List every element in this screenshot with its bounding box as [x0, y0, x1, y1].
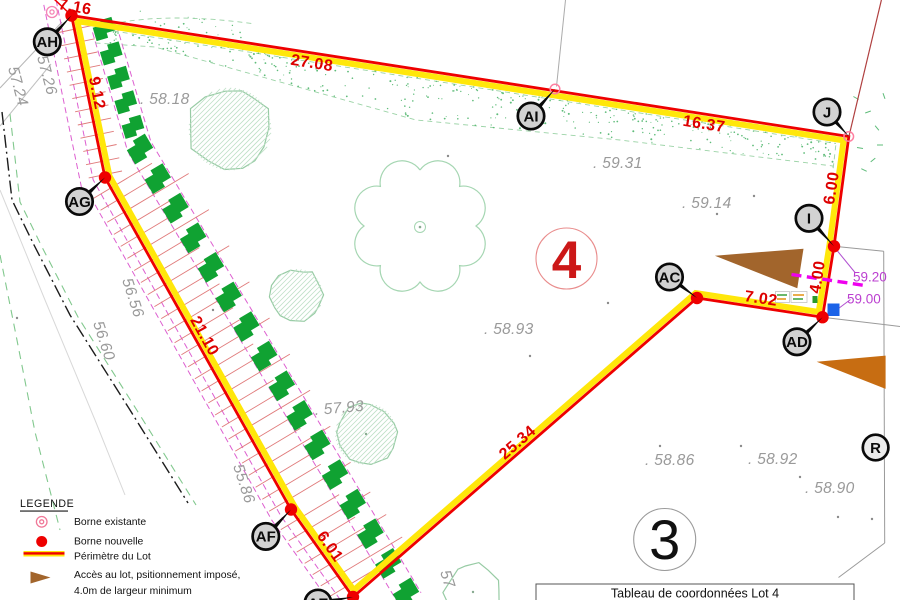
svg-text:. 58.90: . 58.90 — [805, 480, 855, 497]
svg-text:AG: AG — [68, 194, 91, 211]
svg-text:4: 4 — [552, 231, 582, 290]
svg-text:Borne nouvelle: Borne nouvelle — [74, 537, 144, 548]
svg-text:. 58.93: . 58.93 — [484, 321, 534, 338]
svg-text:AD: AD — [786, 334, 808, 351]
svg-text:Tableau de coordonnées Lot 4: Tableau de coordonnées Lot 4 — [611, 587, 779, 600]
svg-text:59.20: 59.20 — [853, 270, 887, 285]
svg-text:AH: AH — [36, 34, 58, 51]
svg-text:59.00: 59.00 — [847, 292, 881, 307]
svg-text:Borne existante: Borne existante — [74, 517, 146, 528]
svg-text:AI: AI — [524, 108, 539, 125]
svg-text:LEGENDE: LEGENDE — [20, 498, 74, 510]
svg-text:4.0m de largeur minimum: 4.0m de largeur minimum — [74, 586, 192, 597]
svg-text:I: I — [807, 211, 811, 228]
svg-text:J: J — [823, 104, 831, 121]
svg-text:. 58.18: . 58.18 — [140, 91, 190, 108]
svg-text:. 58.86: . 58.86 — [645, 452, 695, 469]
svg-text:. 59.31: . 59.31 — [593, 155, 643, 172]
svg-text:AF: AF — [256, 529, 276, 546]
svg-text:R: R — [870, 440, 881, 457]
svg-text:. 58.92: . 58.92 — [748, 451, 798, 468]
svg-text:AC: AC — [659, 269, 681, 286]
svg-text:3: 3 — [649, 508, 680, 571]
svg-text:AE: AE — [308, 595, 329, 600]
svg-text:Accès au lot, psitionnement im: Accès au lot, psitionnement imposé, — [74, 570, 240, 581]
svg-text:Périmètre du Lot: Périmètre du Lot — [74, 552, 151, 563]
svg-text:. 59.14: . 59.14 — [682, 195, 732, 212]
